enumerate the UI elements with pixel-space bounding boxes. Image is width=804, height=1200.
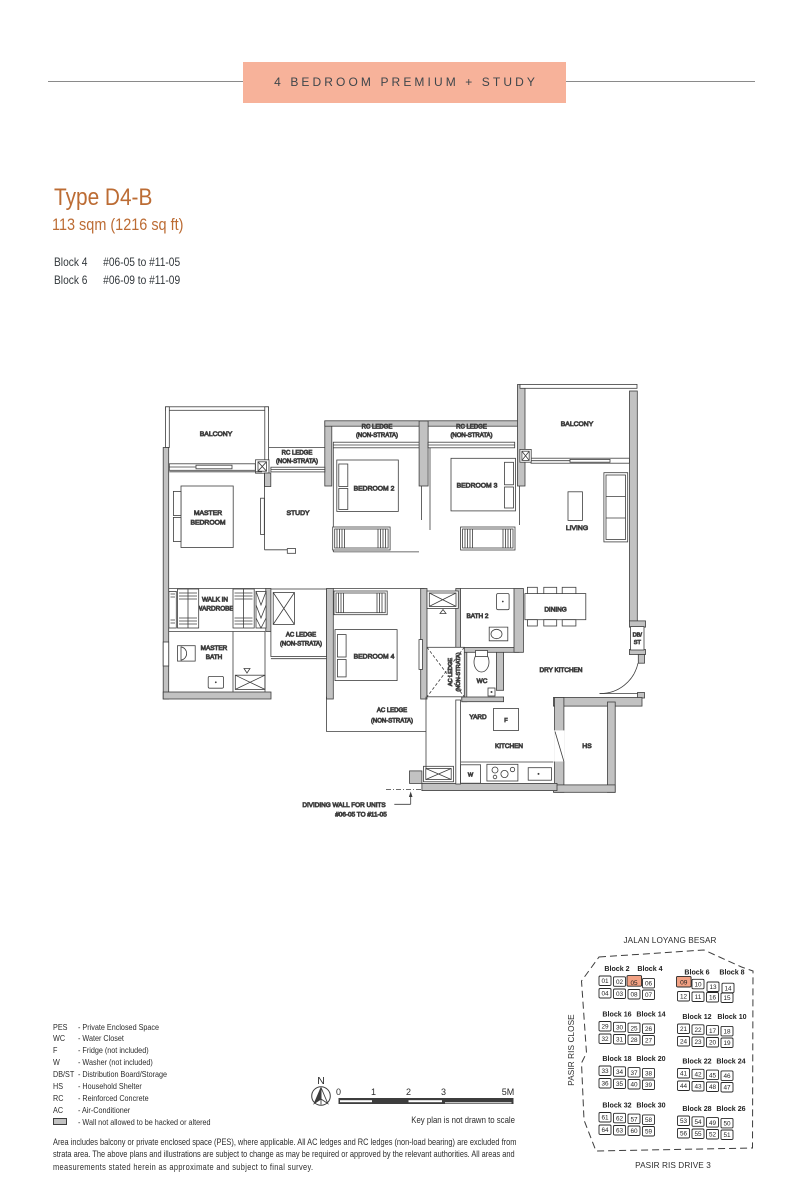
svg-text:Block 6: Block 6 <box>684 969 709 977</box>
svg-text:RC LEDGE: RC LEDGE <box>362 425 393 431</box>
svg-text:BALCONY: BALCONY <box>200 431 233 438</box>
svg-text:HS: HS <box>582 743 592 750</box>
svg-text:DRY KITCHEN: DRY KITCHEN <box>539 667 582 674</box>
svg-text:F: F <box>504 718 508 724</box>
svg-text:33: 33 <box>601 1068 609 1075</box>
svg-text:Block 4: Block 4 <box>637 965 662 973</box>
svg-text:40: 40 <box>630 1082 638 1089</box>
svg-text:BEDROOM 2: BEDROOM 2 <box>354 486 395 493</box>
svg-text:ST: ST <box>634 640 642 646</box>
svg-text:DB/: DB/ <box>633 633 643 639</box>
svg-text:Block 18: Block 18 <box>602 1055 631 1063</box>
svg-text:BEDROOM 4: BEDROOM 4 <box>354 654 395 661</box>
svg-text:32: 32 <box>601 1036 609 1043</box>
svg-text:05: 05 <box>630 980 638 987</box>
svg-text:60: 60 <box>630 1128 638 1135</box>
svg-text:02: 02 <box>616 979 624 986</box>
svg-text:48: 48 <box>709 1084 717 1091</box>
svg-text:KITCHEN: KITCHEN <box>495 743 523 750</box>
svg-text:01: 01 <box>601 978 609 985</box>
svg-text:23: 23 <box>694 1039 702 1046</box>
svg-text:06: 06 <box>645 981 653 988</box>
svg-text:09: 09 <box>680 980 688 987</box>
svg-text:#06-05 TO #11-05: #06-05 TO #11-05 <box>335 812 387 819</box>
svg-text:0: 0 <box>336 1087 341 1097</box>
svg-text:63: 63 <box>616 1128 624 1135</box>
svg-text:LIVING: LIVING <box>566 525 588 532</box>
svg-text:(NON-STRATA): (NON-STRATA) <box>356 433 398 439</box>
svg-text:(NON-STRATA): (NON-STRATA) <box>371 719 413 725</box>
svg-text:Block 26: Block 26 <box>716 1105 745 1113</box>
svg-text:03: 03 <box>616 991 624 998</box>
svg-text:64: 64 <box>601 1127 609 1134</box>
svg-text:35: 35 <box>616 1081 624 1088</box>
svg-text:45: 45 <box>709 1072 717 1079</box>
svg-text:41: 41 <box>680 1071 688 1078</box>
svg-text:Block 16: Block 16 <box>602 1011 631 1019</box>
svg-text:42: 42 <box>694 1072 702 1079</box>
svg-text:24: 24 <box>680 1039 688 1046</box>
svg-text:19: 19 <box>723 1040 731 1047</box>
svg-text:50: 50 <box>723 1121 731 1128</box>
svg-text:49: 49 <box>709 1120 717 1127</box>
svg-text:37: 37 <box>630 1070 638 1077</box>
svg-text:BEDROOM 3: BEDROOM 3 <box>457 483 498 490</box>
svg-text:51: 51 <box>723 1132 731 1139</box>
svg-text:MASTER: MASTER <box>194 510 222 517</box>
svg-text:RC LEDGE: RC LEDGE <box>456 425 487 431</box>
svg-text:25: 25 <box>630 1025 638 1032</box>
svg-text:15: 15 <box>723 995 731 1002</box>
svg-text:(NON-STRATA): (NON-STRATA) <box>456 652 462 691</box>
svg-text:5M: 5M <box>502 1087 515 1097</box>
svg-text:27: 27 <box>645 1038 653 1045</box>
svg-text:29: 29 <box>601 1024 609 1031</box>
svg-text:Block 8: Block 8 <box>719 969 744 977</box>
svg-text:BATH: BATH <box>206 654 223 661</box>
svg-text:Block 14: Block 14 <box>636 1011 665 1019</box>
svg-text:3: 3 <box>441 1087 446 1097</box>
svg-text:21: 21 <box>680 1026 688 1033</box>
svg-text:12: 12 <box>680 994 688 1001</box>
svg-text:Block 30: Block 30 <box>636 1102 665 1110</box>
svg-text:14: 14 <box>724 985 732 992</box>
svg-text:AC LEDGE: AC LEDGE <box>377 708 407 714</box>
svg-text:38: 38 <box>645 1071 653 1078</box>
svg-text:54: 54 <box>694 1119 702 1126</box>
svg-text:53: 53 <box>680 1118 688 1125</box>
svg-text:JALAN LOYANG BESAR: JALAN LOYANG BESAR <box>623 936 716 945</box>
svg-text:07: 07 <box>645 992 653 999</box>
svg-text:YARD: YARD <box>469 714 487 721</box>
svg-text:N: N <box>317 1075 325 1087</box>
svg-text:Block 2: Block 2 <box>604 965 629 973</box>
svg-text:RC LEDGE: RC LEDGE <box>282 450 313 456</box>
svg-text:28: 28 <box>630 1037 638 1044</box>
svg-text:57: 57 <box>630 1116 638 1123</box>
svg-text:Block 20: Block 20 <box>636 1055 665 1063</box>
svg-text:MASTER: MASTER <box>201 645 228 652</box>
svg-text:PASIR RIS DRIVE 3: PASIR RIS DRIVE 3 <box>635 1161 711 1170</box>
svg-text:44: 44 <box>680 1083 688 1090</box>
svg-text:BEDROOM: BEDROOM <box>190 520 225 527</box>
svg-text:22: 22 <box>694 1027 702 1034</box>
svg-text:WALK IN: WALK IN <box>202 597 228 604</box>
svg-text:13: 13 <box>709 984 717 991</box>
svg-text:BALCONY: BALCONY <box>561 421 594 428</box>
svg-text:17: 17 <box>709 1028 717 1035</box>
svg-text:AC LEDGE: AC LEDGE <box>286 633 316 639</box>
svg-text:56: 56 <box>680 1131 688 1138</box>
svg-text:Block 28: Block 28 <box>682 1105 711 1113</box>
svg-text:43: 43 <box>694 1084 702 1091</box>
svg-text:2: 2 <box>406 1087 411 1097</box>
svg-text:W: W <box>468 773 474 779</box>
svg-text:39: 39 <box>645 1082 653 1089</box>
svg-text:(NON-STRATA): (NON-STRATA) <box>276 459 318 465</box>
svg-text:46: 46 <box>723 1073 731 1080</box>
svg-text:AC LEDGE: AC LEDGE <box>448 658 454 687</box>
svg-text:52: 52 <box>709 1132 717 1139</box>
svg-text:18: 18 <box>723 1029 731 1036</box>
svg-text:34: 34 <box>616 1069 624 1076</box>
svg-text:08: 08 <box>630 992 638 999</box>
svg-text:11: 11 <box>695 994 702 1001</box>
svg-text:DIVIDING WALL FOR UNITS: DIVIDING WALL FOR UNITS <box>302 802 385 809</box>
svg-text:26: 26 <box>645 1026 653 1033</box>
svg-text:STUDY: STUDY <box>286 510 310 517</box>
svg-text:16: 16 <box>709 995 717 1002</box>
svg-text:36: 36 <box>601 1081 609 1088</box>
svg-text:31: 31 <box>616 1037 624 1044</box>
svg-text:04: 04 <box>601 991 609 998</box>
svg-text:WARDROBE: WARDROBE <box>196 606 233 613</box>
svg-text:DINING: DINING <box>544 607 566 614</box>
svg-text:BATH 2: BATH 2 <box>467 613 489 620</box>
svg-text:47: 47 <box>723 1085 731 1092</box>
svg-text:58: 58 <box>645 1117 653 1124</box>
svg-text:62: 62 <box>616 1116 624 1123</box>
svg-text:59: 59 <box>645 1129 653 1136</box>
svg-text:61: 61 <box>601 1115 609 1122</box>
svg-text:Block 24: Block 24 <box>716 1058 745 1066</box>
svg-text:20: 20 <box>709 1040 717 1047</box>
svg-text:Block 10: Block 10 <box>717 1013 746 1021</box>
svg-text:(NON-STRATA): (NON-STRATA) <box>450 433 492 439</box>
svg-text:1: 1 <box>371 1087 376 1097</box>
svg-text:Block 22: Block 22 <box>682 1058 711 1066</box>
svg-text:10: 10 <box>694 982 702 989</box>
svg-text:30: 30 <box>616 1025 624 1032</box>
svg-text:PASIR RIS CLOSE: PASIR RIS CLOSE <box>567 1014 576 1086</box>
svg-text:WC: WC <box>477 678 488 685</box>
svg-text:Block 12: Block 12 <box>682 1013 711 1021</box>
svg-text:Block 32: Block 32 <box>602 1102 631 1110</box>
svg-text:55: 55 <box>694 1131 702 1138</box>
svg-text:(NON-STRATA): (NON-STRATA) <box>280 642 322 648</box>
